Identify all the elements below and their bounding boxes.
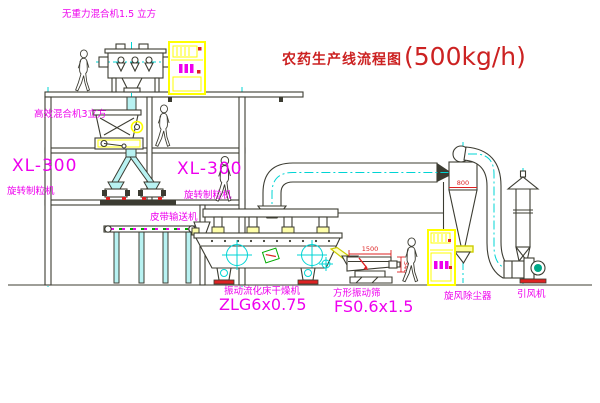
exhaust-duct [263,163,449,216]
flow-diagram-canvas: 1500 340 800 [0,0,600,403]
belt-conveyor [104,226,196,283]
label-granulator-right-name: 旋转制粒机 [184,191,232,201]
worker-figure-ground [403,238,418,282]
control-cabinet-top [169,42,205,94]
granulator-left [102,182,130,200]
title-text: 农药生产线流程图 [282,49,402,69]
granulator-right [138,182,166,200]
control-cabinet-right [428,230,455,285]
title-capacity: (500kg/h) [404,42,526,71]
induced-draft-fan [504,258,546,283]
screen-length-dim: 1500 [362,245,379,253]
label-fan: 引风机 [517,290,546,300]
cyclone-dim: 800 [457,179,469,187]
label-cyclone: 旋风除尘器 [444,292,492,302]
label-granulator-left-name: 旋转制粒机 [7,187,55,197]
label-granulator-left-model: XL-300 [12,158,77,175]
label-belt-conveyor: 皮带输送机 [150,213,198,223]
worker-figure-roof [76,50,90,91]
label-top-mixer: 无重力混合机1.5 立方 [62,10,156,20]
worker-figure-floor2 [156,105,170,146]
label-floor2-mixer: 高效混合机3立方 [34,110,107,120]
diagram-title: 农药生产线流程图 (500kg/h) [282,42,526,71]
label-dryer-model: ZLG6x0.75 [219,297,307,313]
gravity-free-mixer [96,42,175,112]
label-screen-model: FS0.6x1.5 [334,299,413,315]
label-granulator-right-model: XL-300 [177,161,242,178]
